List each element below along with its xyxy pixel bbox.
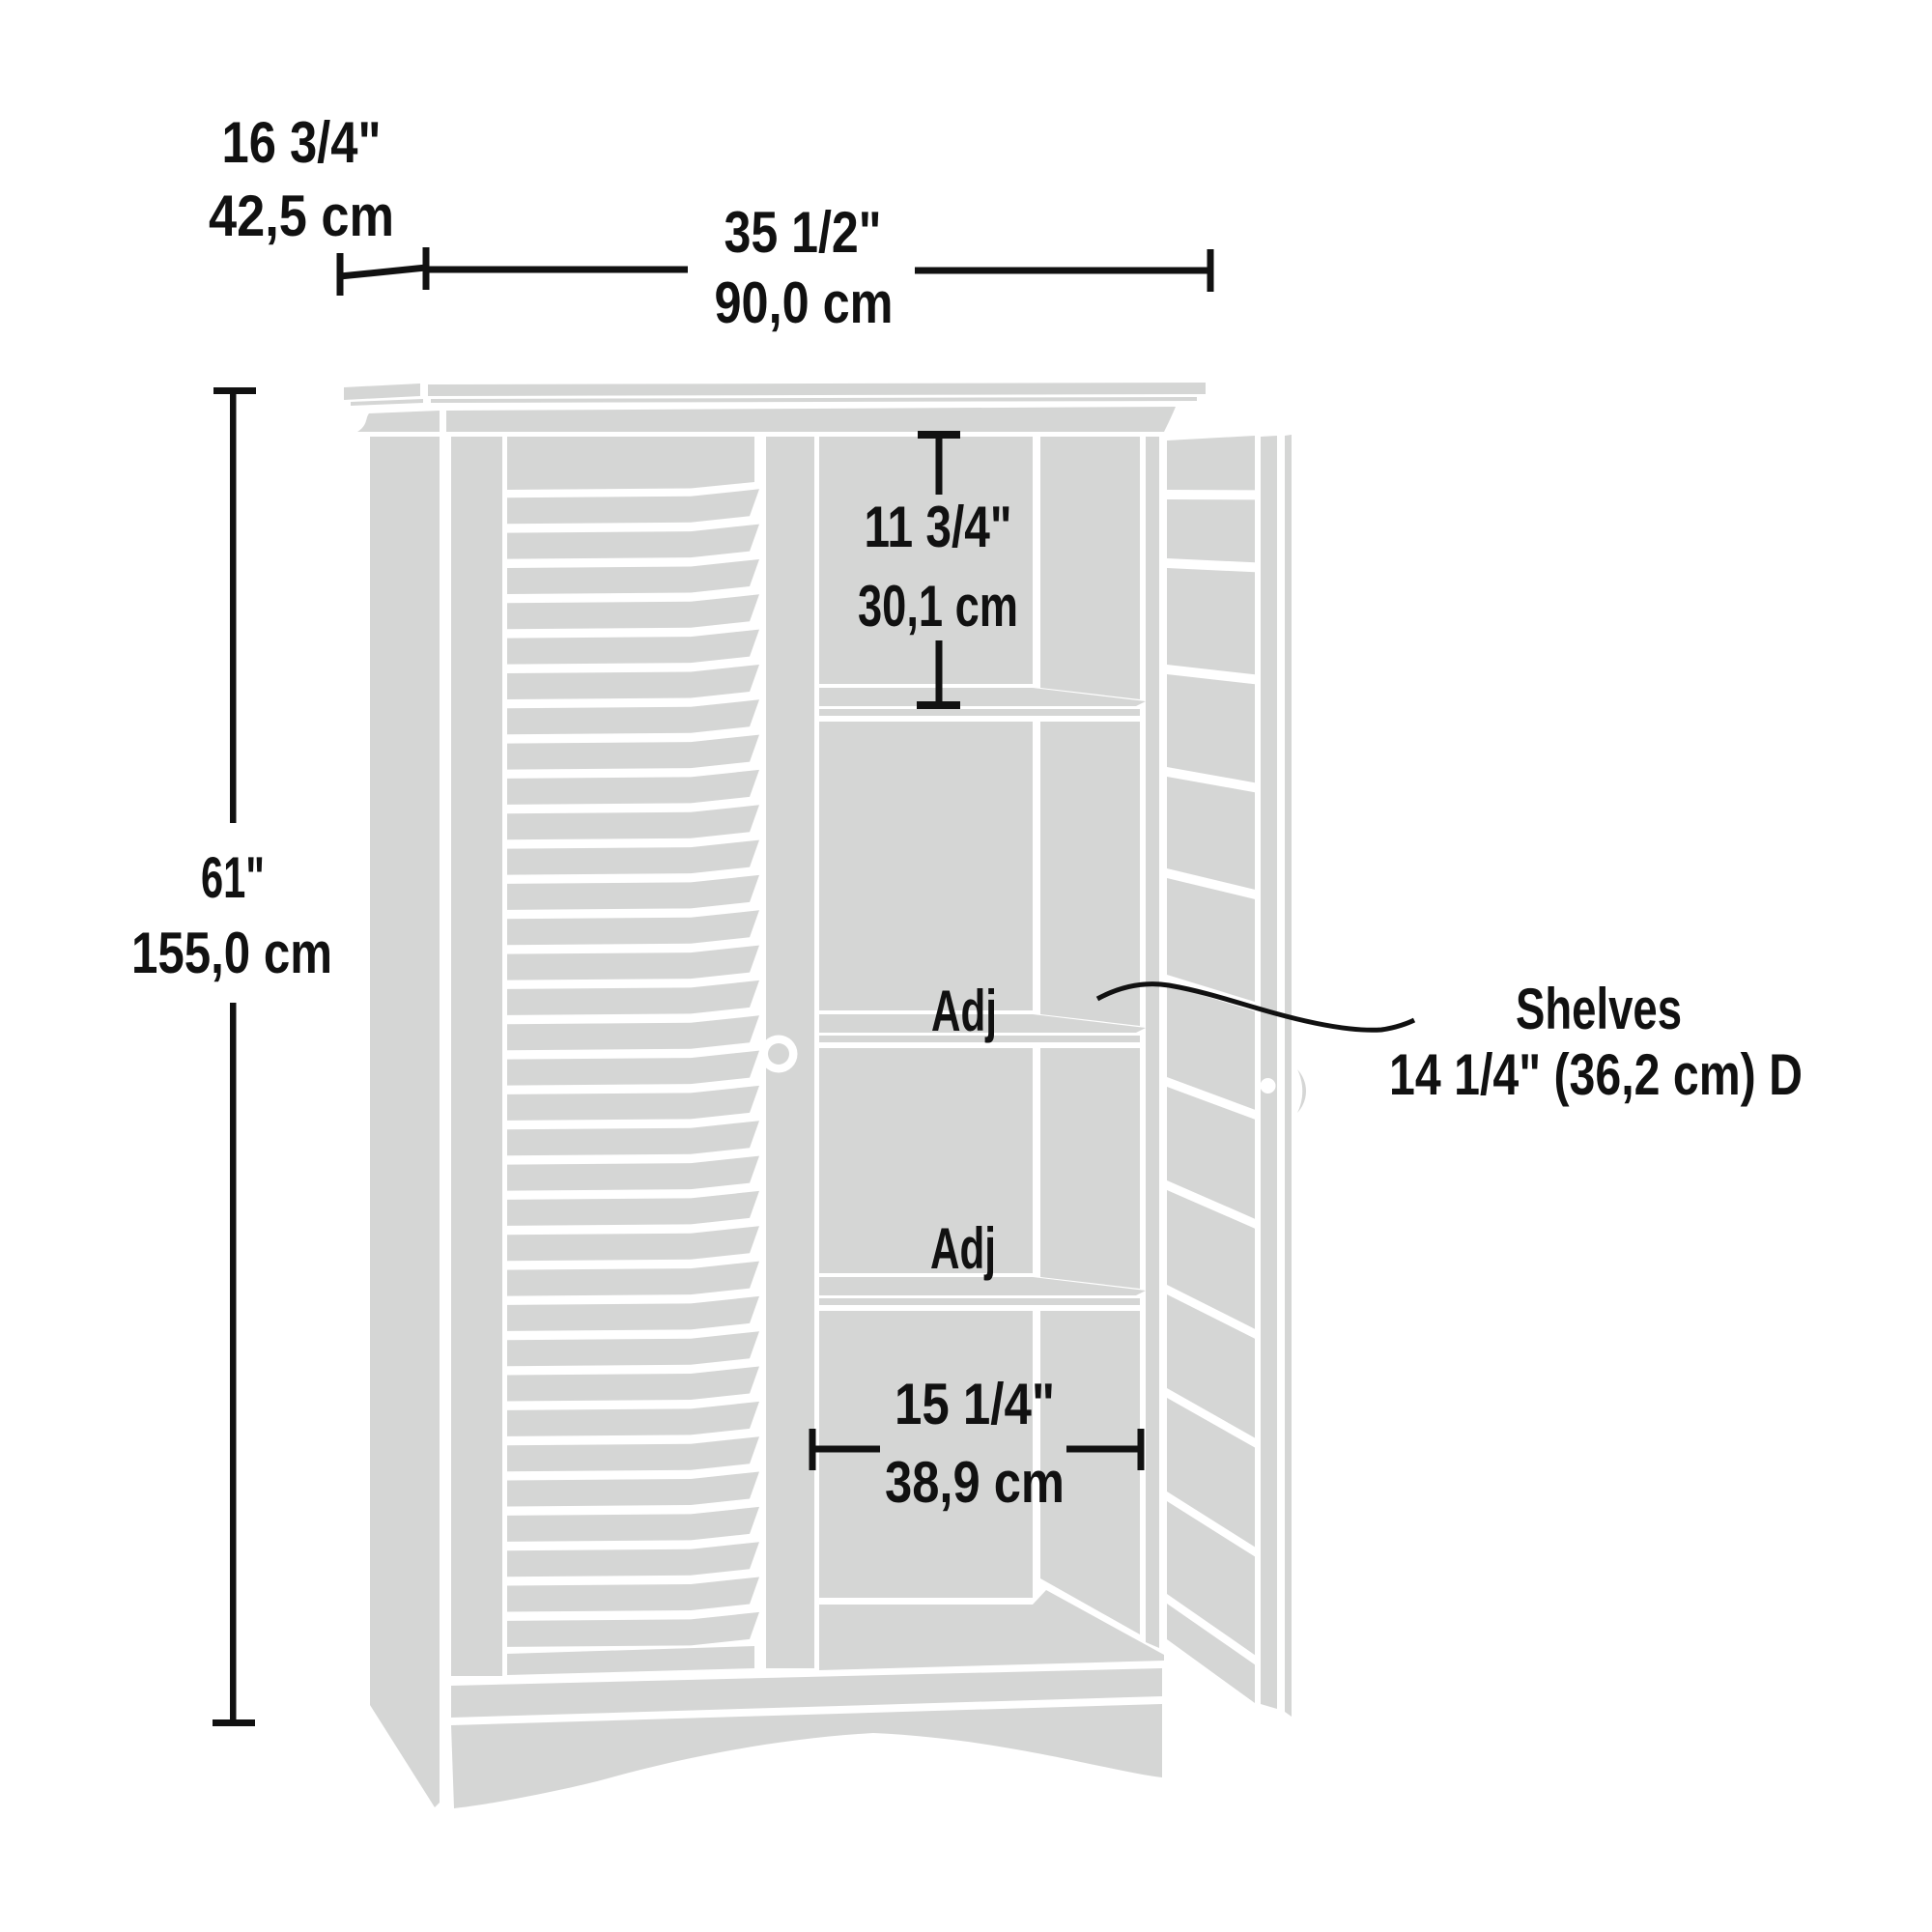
svg-text:Adj: Adj (931, 979, 997, 1043)
svg-text:11 3/4": 11 3/4" (865, 495, 1012, 559)
svg-text:61": 61" (201, 845, 265, 910)
svg-text:16 3/4": 16 3/4" (222, 110, 382, 175)
svg-text:35 1/2": 35 1/2" (724, 200, 882, 265)
svg-text:Adj: Adj (930, 1216, 996, 1281)
svg-text:Shelves: Shelves (1516, 977, 1682, 1041)
svg-text:14 1/4" (36,2 cm) D: 14 1/4" (36,2 cm) D (1389, 1042, 1803, 1107)
svg-text:15 1/4": 15 1/4" (895, 1372, 1055, 1436)
svg-text:42,5 cm: 42,5 cm (209, 184, 394, 248)
svg-text:38,9 cm: 38,9 cm (885, 1450, 1065, 1515)
svg-text:155,0 cm: 155,0 cm (131, 921, 332, 985)
svg-text:90,0 cm: 90,0 cm (715, 270, 894, 335)
svg-text:30,1 cm: 30,1 cm (858, 574, 1018, 639)
